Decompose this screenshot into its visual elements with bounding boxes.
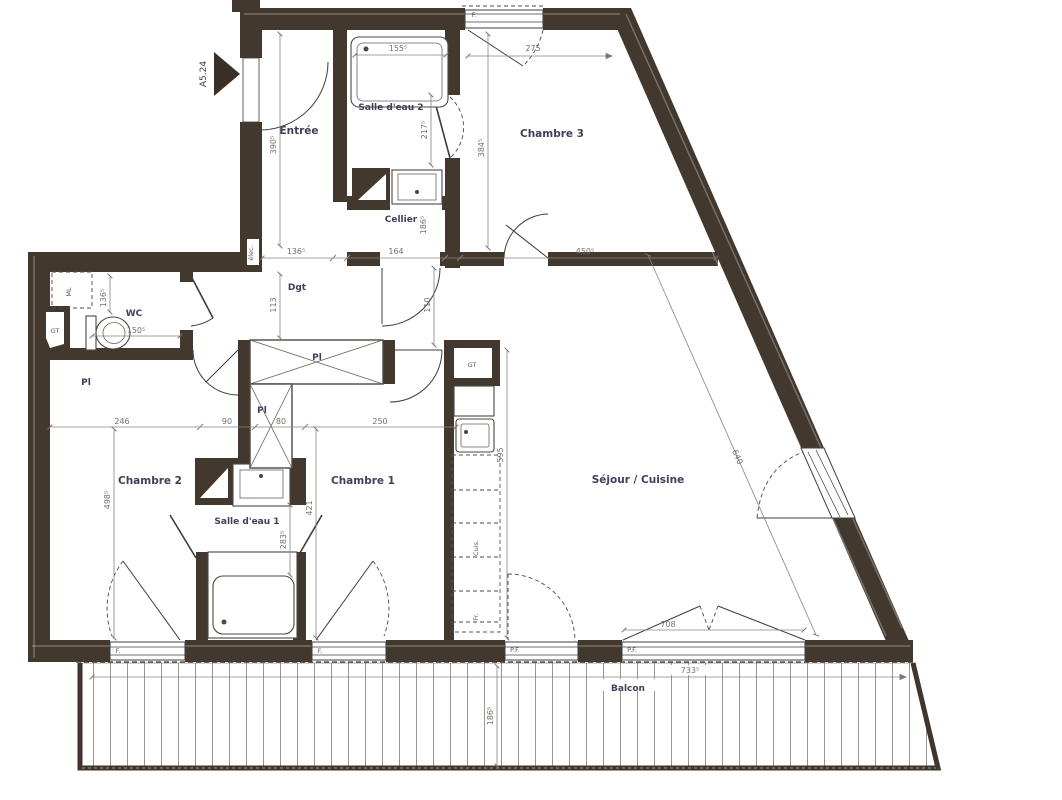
dim-hall-w: 90 <box>222 417 232 426</box>
dim-ch3-h: 384⁵ <box>477 139 486 157</box>
dim-pl-w: 80 <box>276 417 286 426</box>
dim-sde1-h: 283⁵ <box>279 531 288 549</box>
balcony <box>76 662 938 768</box>
sink-sde2 <box>392 170 442 204</box>
dim-dgt-h: 113 <box>269 297 278 312</box>
window-slant-sejour <box>757 448 855 518</box>
dim-tub2: 155⁵ <box>389 44 407 53</box>
room-label-pl-vertical: Pl <box>257 406 267 416</box>
room-label-pl-left: Pl <box>81 378 91 388</box>
window-f-chambre1 <box>312 561 389 660</box>
door-chambre3 <box>504 214 548 258</box>
cooktop <box>454 386 494 416</box>
floor-plan-page: A5.24 Entrée Salle d'eau 2 Chambre 3 Cel… <box>0 0 1062 800</box>
dim-balcon-d: 186⁵ <box>486 707 495 725</box>
dim-wc-h: 136⁵ <box>99 289 108 307</box>
dim-ch3-w: 450⁵ <box>576 247 594 256</box>
dim-ch3-top: 275 <box>525 44 540 53</box>
window-pf2-sejour <box>622 606 805 660</box>
dim-ch1-w: 250 <box>372 417 387 426</box>
dim-dgt-w: 136⁵ <box>287 247 305 256</box>
room-label-salle-eau-2: Salle d'eau 2 <box>358 103 423 113</box>
labels: A5.24 Entrée Salle d'eau 2 Chambre 3 Cel… <box>51 11 745 725</box>
room-label-chambre-1: Chambre 1 <box>331 475 395 487</box>
dimension-lines <box>50 34 816 638</box>
dim-sde2-h: 217⁵ <box>420 121 429 139</box>
balcony-deck-hatch <box>80 663 938 768</box>
room-label-cellier: Cellier <box>385 215 418 225</box>
dim-dgt-h2: 110 <box>423 297 432 312</box>
entrance-arrow-icon <box>214 52 240 96</box>
fixture-label-cuisine: Cuis. <box>472 540 480 556</box>
opening-label-pf1: P.F. <box>510 646 520 654</box>
dim-sejour-h: 595 <box>496 447 505 462</box>
dim-pl-h: 421 <box>305 500 314 515</box>
walls <box>28 0 913 662</box>
door-salle-eau-1-left <box>170 515 196 558</box>
door-salle-eau-1-right <box>297 515 322 558</box>
kitchen-run <box>452 386 500 632</box>
fixture-label-elec: élec. <box>247 245 255 260</box>
room-label-balcon: Balcon <box>611 684 645 694</box>
slant-wall-lower <box>832 518 912 648</box>
fixture-label-frigo: Fr. <box>472 613 480 620</box>
bathtub-sde1 <box>208 552 297 638</box>
window-leaf <box>468 30 523 66</box>
dim-ch2-h: 498⁵ <box>103 491 112 509</box>
fixture-label-gt-wc: GT <box>51 327 60 335</box>
door-cellier <box>382 268 440 326</box>
fixture-label-gt-cuisine: GT <box>468 361 477 369</box>
opening-label-pf2: P.F. <box>627 646 637 654</box>
dim-cellier-w: 164 <box>388 247 403 256</box>
fixture-label-ml: ML <box>65 287 73 297</box>
dim-pf-w: 708 <box>660 620 675 629</box>
opening-label-f1: F. <box>116 647 121 655</box>
toilet-wc <box>86 316 130 350</box>
room-label-dgt: Dgt <box>288 283 307 293</box>
room-label-sejour: Séjour / Cuisine <box>592 474 685 486</box>
door-chambre2 <box>193 350 238 395</box>
door-wc <box>191 276 213 326</box>
room-label-wc: WC <box>126 309 143 319</box>
entrance-door <box>214 52 328 130</box>
opening-label-f2: F. <box>318 647 323 655</box>
dim-ch2-w: 246 <box>114 417 129 426</box>
room-label-pl-horizontal: Pl <box>312 353 322 363</box>
room-label-chambre-3: Chambre 3 <box>520 128 584 140</box>
opening-label-f-top: F. <box>472 11 477 19</box>
dim-balcon-w: 733⁵ <box>681 666 699 675</box>
sink-sde1 <box>233 464 290 506</box>
door-chambre1 <box>390 350 442 402</box>
dim-diagonal: 640 <box>730 448 744 466</box>
floor-plan-drawing: A5.24 Entrée Salle d'eau 2 Chambre 3 Cel… <box>0 0 1062 800</box>
room-label-salle-eau-1: Salle d'eau 1 <box>214 517 279 527</box>
dim-cellier-h: 186⁵ <box>419 216 428 234</box>
window-f-chambre2 <box>107 561 185 660</box>
dim-entree-h: 390⁵ <box>269 136 278 154</box>
plan-marker-label: A5.24 <box>199 61 209 87</box>
fixtures <box>52 37 500 638</box>
room-label-entree: Entrée <box>279 125 318 137</box>
room-label-chambre-2: Chambre 2 <box>118 475 182 487</box>
dim-wc-w: 150⁵ <box>127 326 145 335</box>
